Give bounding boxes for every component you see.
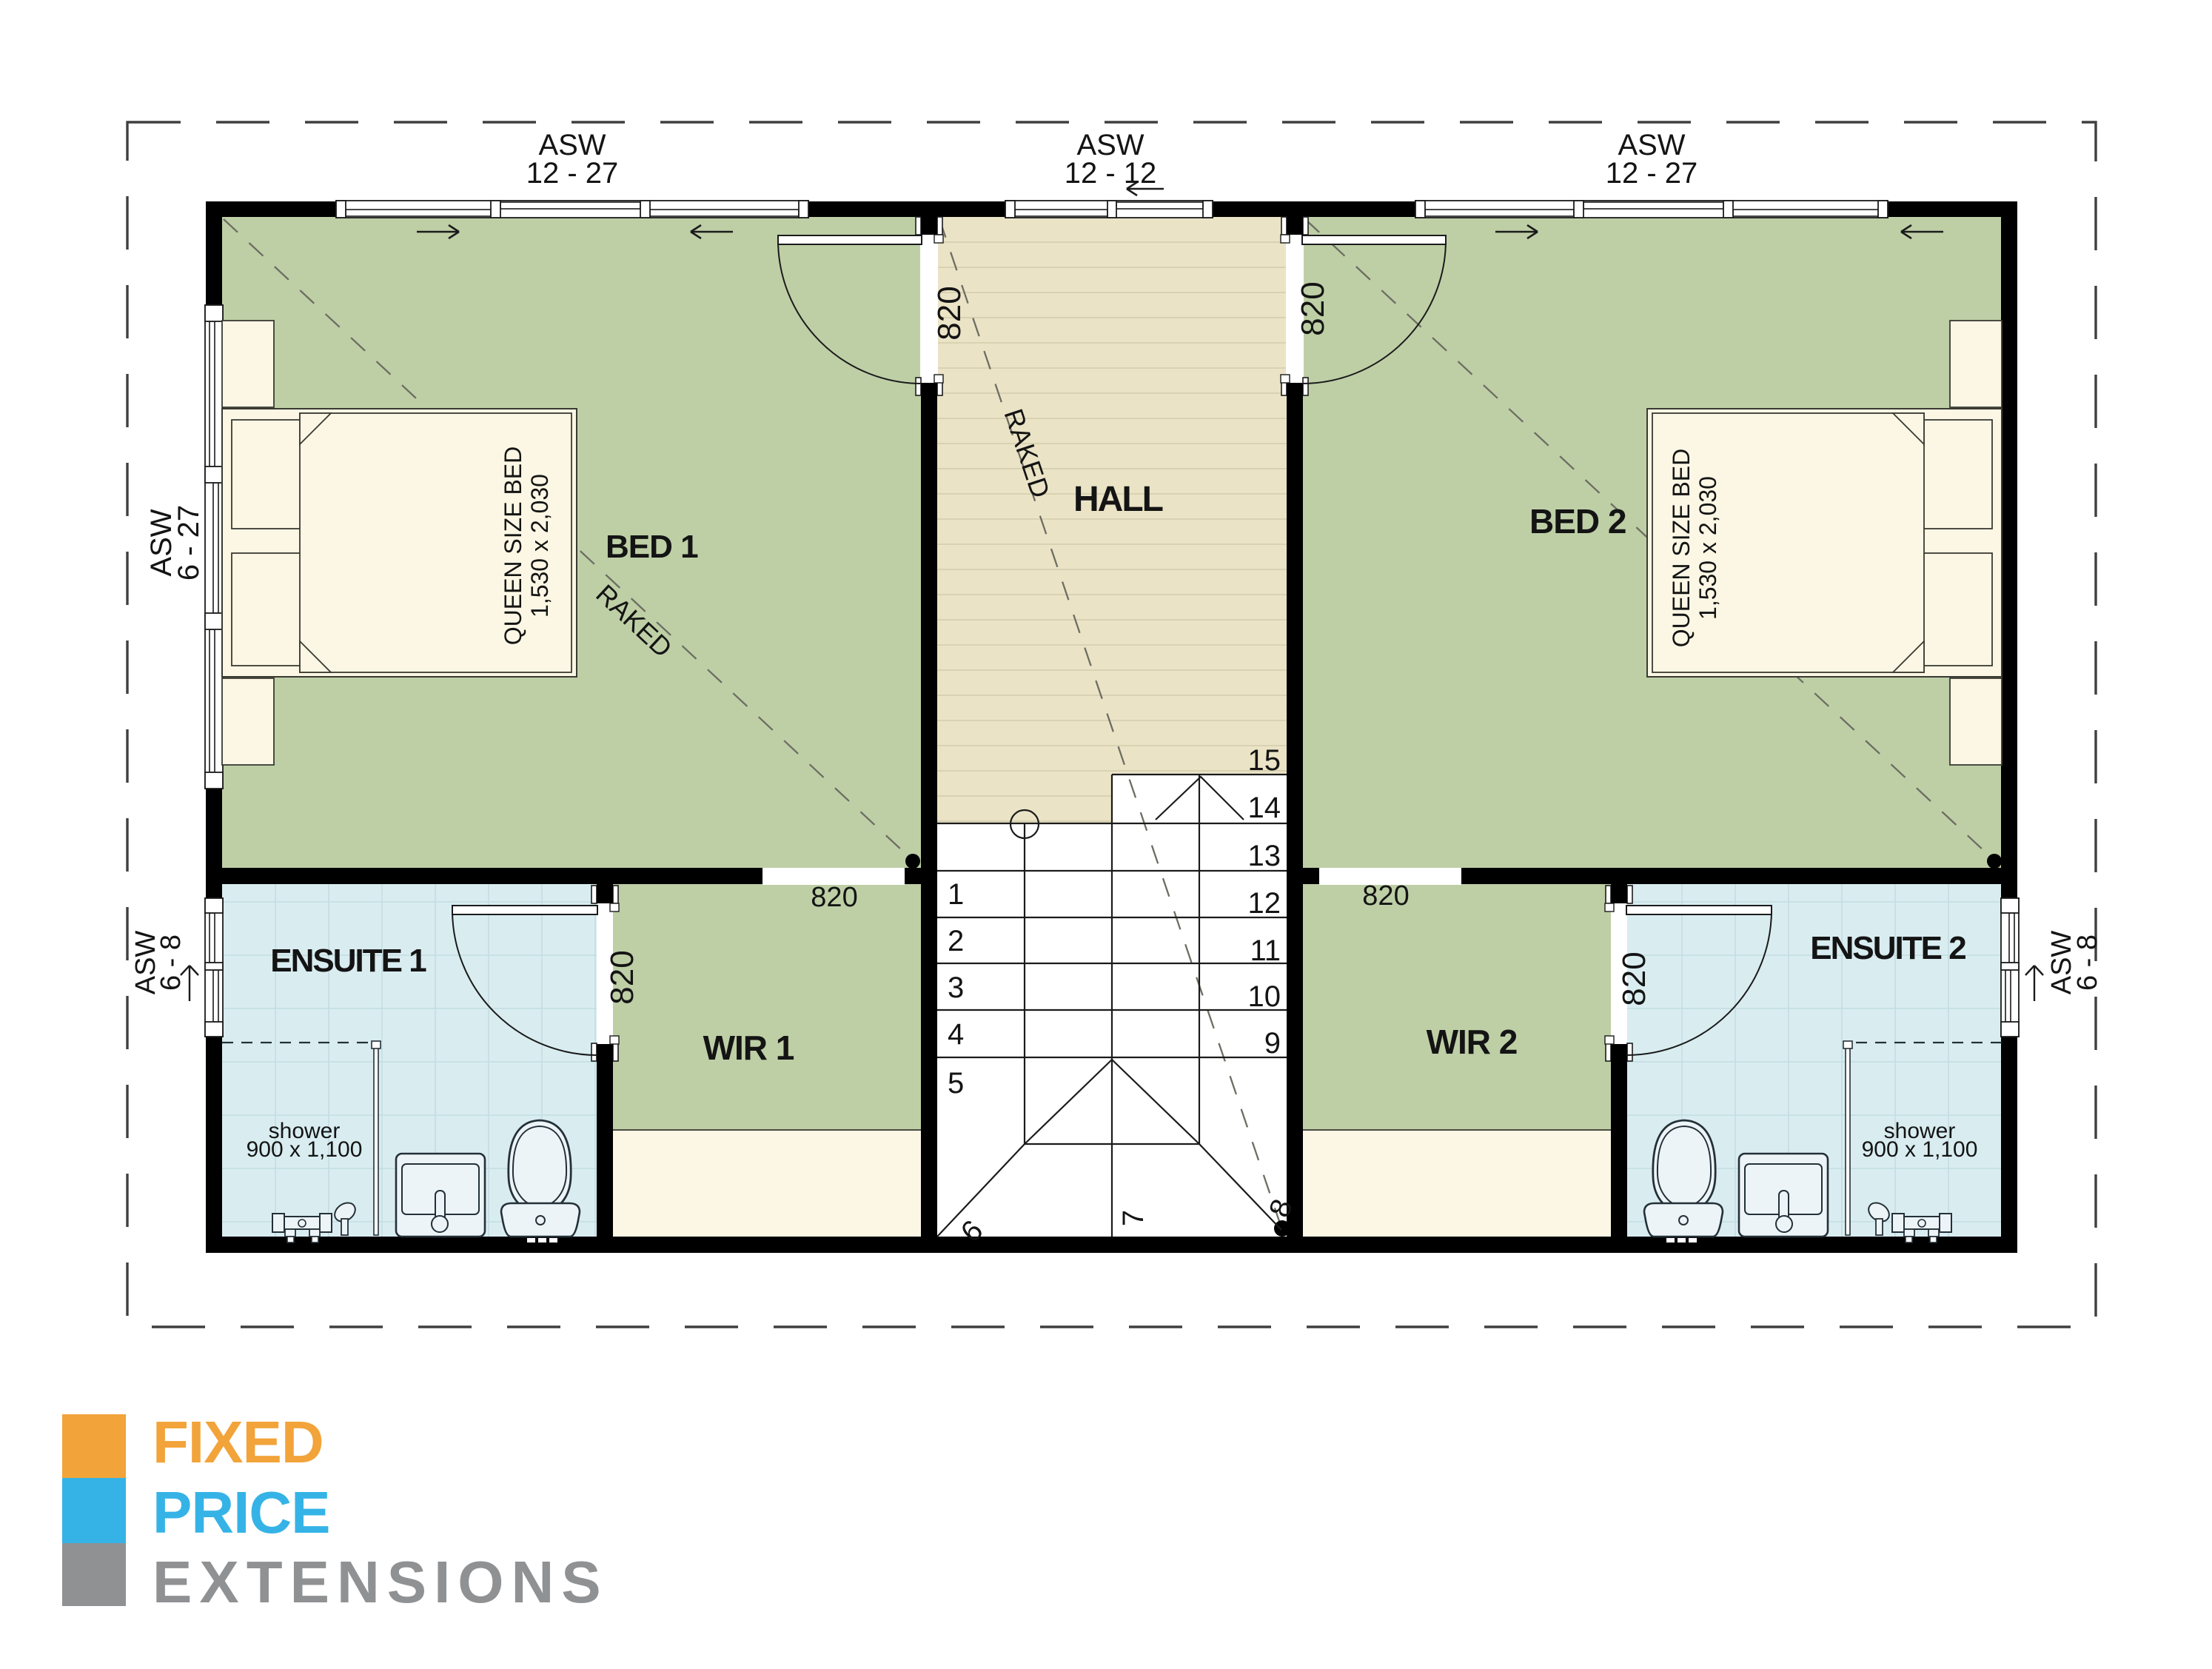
svg-text:5: 5	[948, 1067, 964, 1100]
svg-text:900 x 1,100: 900 x 1,100	[1862, 1137, 1978, 1162]
svg-text:9: 9	[1264, 1027, 1281, 1060]
svg-text:WIR 2: WIR 2	[1427, 1023, 1518, 1061]
svg-text:4: 4	[948, 1018, 964, 1051]
svg-text:820: 820	[604, 950, 640, 1004]
svg-text:2: 2	[948, 925, 964, 957]
svg-text:15: 15	[1248, 744, 1281, 777]
svg-text:13: 13	[1248, 840, 1281, 872]
svg-text:11: 11	[1250, 934, 1281, 967]
svg-text:ENSUITE 2: ENSUITE 2	[1810, 930, 1965, 966]
svg-text:12 - 27: 12 - 27	[1606, 157, 1698, 190]
svg-text:BED 1: BED 1	[606, 529, 698, 565]
svg-text:3: 3	[948, 971, 964, 1004]
svg-text:12 - 12: 12 - 12	[1065, 157, 1157, 190]
svg-text:1,530 x 2,030: 1,530 x 2,030	[1695, 476, 1721, 620]
svg-text:FIXED: FIXED	[153, 1409, 324, 1475]
svg-text:10: 10	[1248, 980, 1281, 1013]
svg-text:1,530 x 2,030: 1,530 x 2,030	[526, 474, 553, 618]
svg-text:820: 820	[1362, 880, 1409, 912]
svg-text:EXTENSIONS: EXTENSIONS	[153, 1549, 609, 1615]
svg-text:820: 820	[1616, 951, 1652, 1006]
svg-text:6 - 27: 6 - 27	[172, 505, 205, 581]
svg-text:BED 2: BED 2	[1529, 502, 1626, 541]
svg-text:6 - 8: 6 - 8	[155, 934, 187, 991]
svg-text:HALL: HALL	[1073, 480, 1163, 519]
svg-text:14: 14	[1248, 792, 1281, 824]
svg-text:QUEEN SIZE BED: QUEEN SIZE BED	[500, 446, 526, 646]
svg-text:6 - 8: 6 - 8	[2072, 934, 2103, 991]
svg-text:820: 820	[1295, 281, 1331, 335]
svg-text:12: 12	[1248, 887, 1281, 920]
svg-text:7: 7	[1117, 1210, 1150, 1226]
svg-text:900 x 1,100: 900 x 1,100	[247, 1137, 363, 1162]
svg-text:12 - 27: 12 - 27	[526, 157, 619, 190]
svg-text:ENSUITE 1: ENSUITE 1	[270, 943, 426, 979]
svg-text:820: 820	[811, 882, 857, 913]
svg-text:WIR 1: WIR 1	[703, 1029, 794, 1067]
svg-text:1: 1	[948, 878, 964, 911]
svg-text:QUEEN SIZE BED: QUEEN SIZE BED	[1668, 449, 1695, 648]
svg-text:PRICE: PRICE	[153, 1479, 330, 1545]
svg-text:820: 820	[931, 286, 968, 340]
